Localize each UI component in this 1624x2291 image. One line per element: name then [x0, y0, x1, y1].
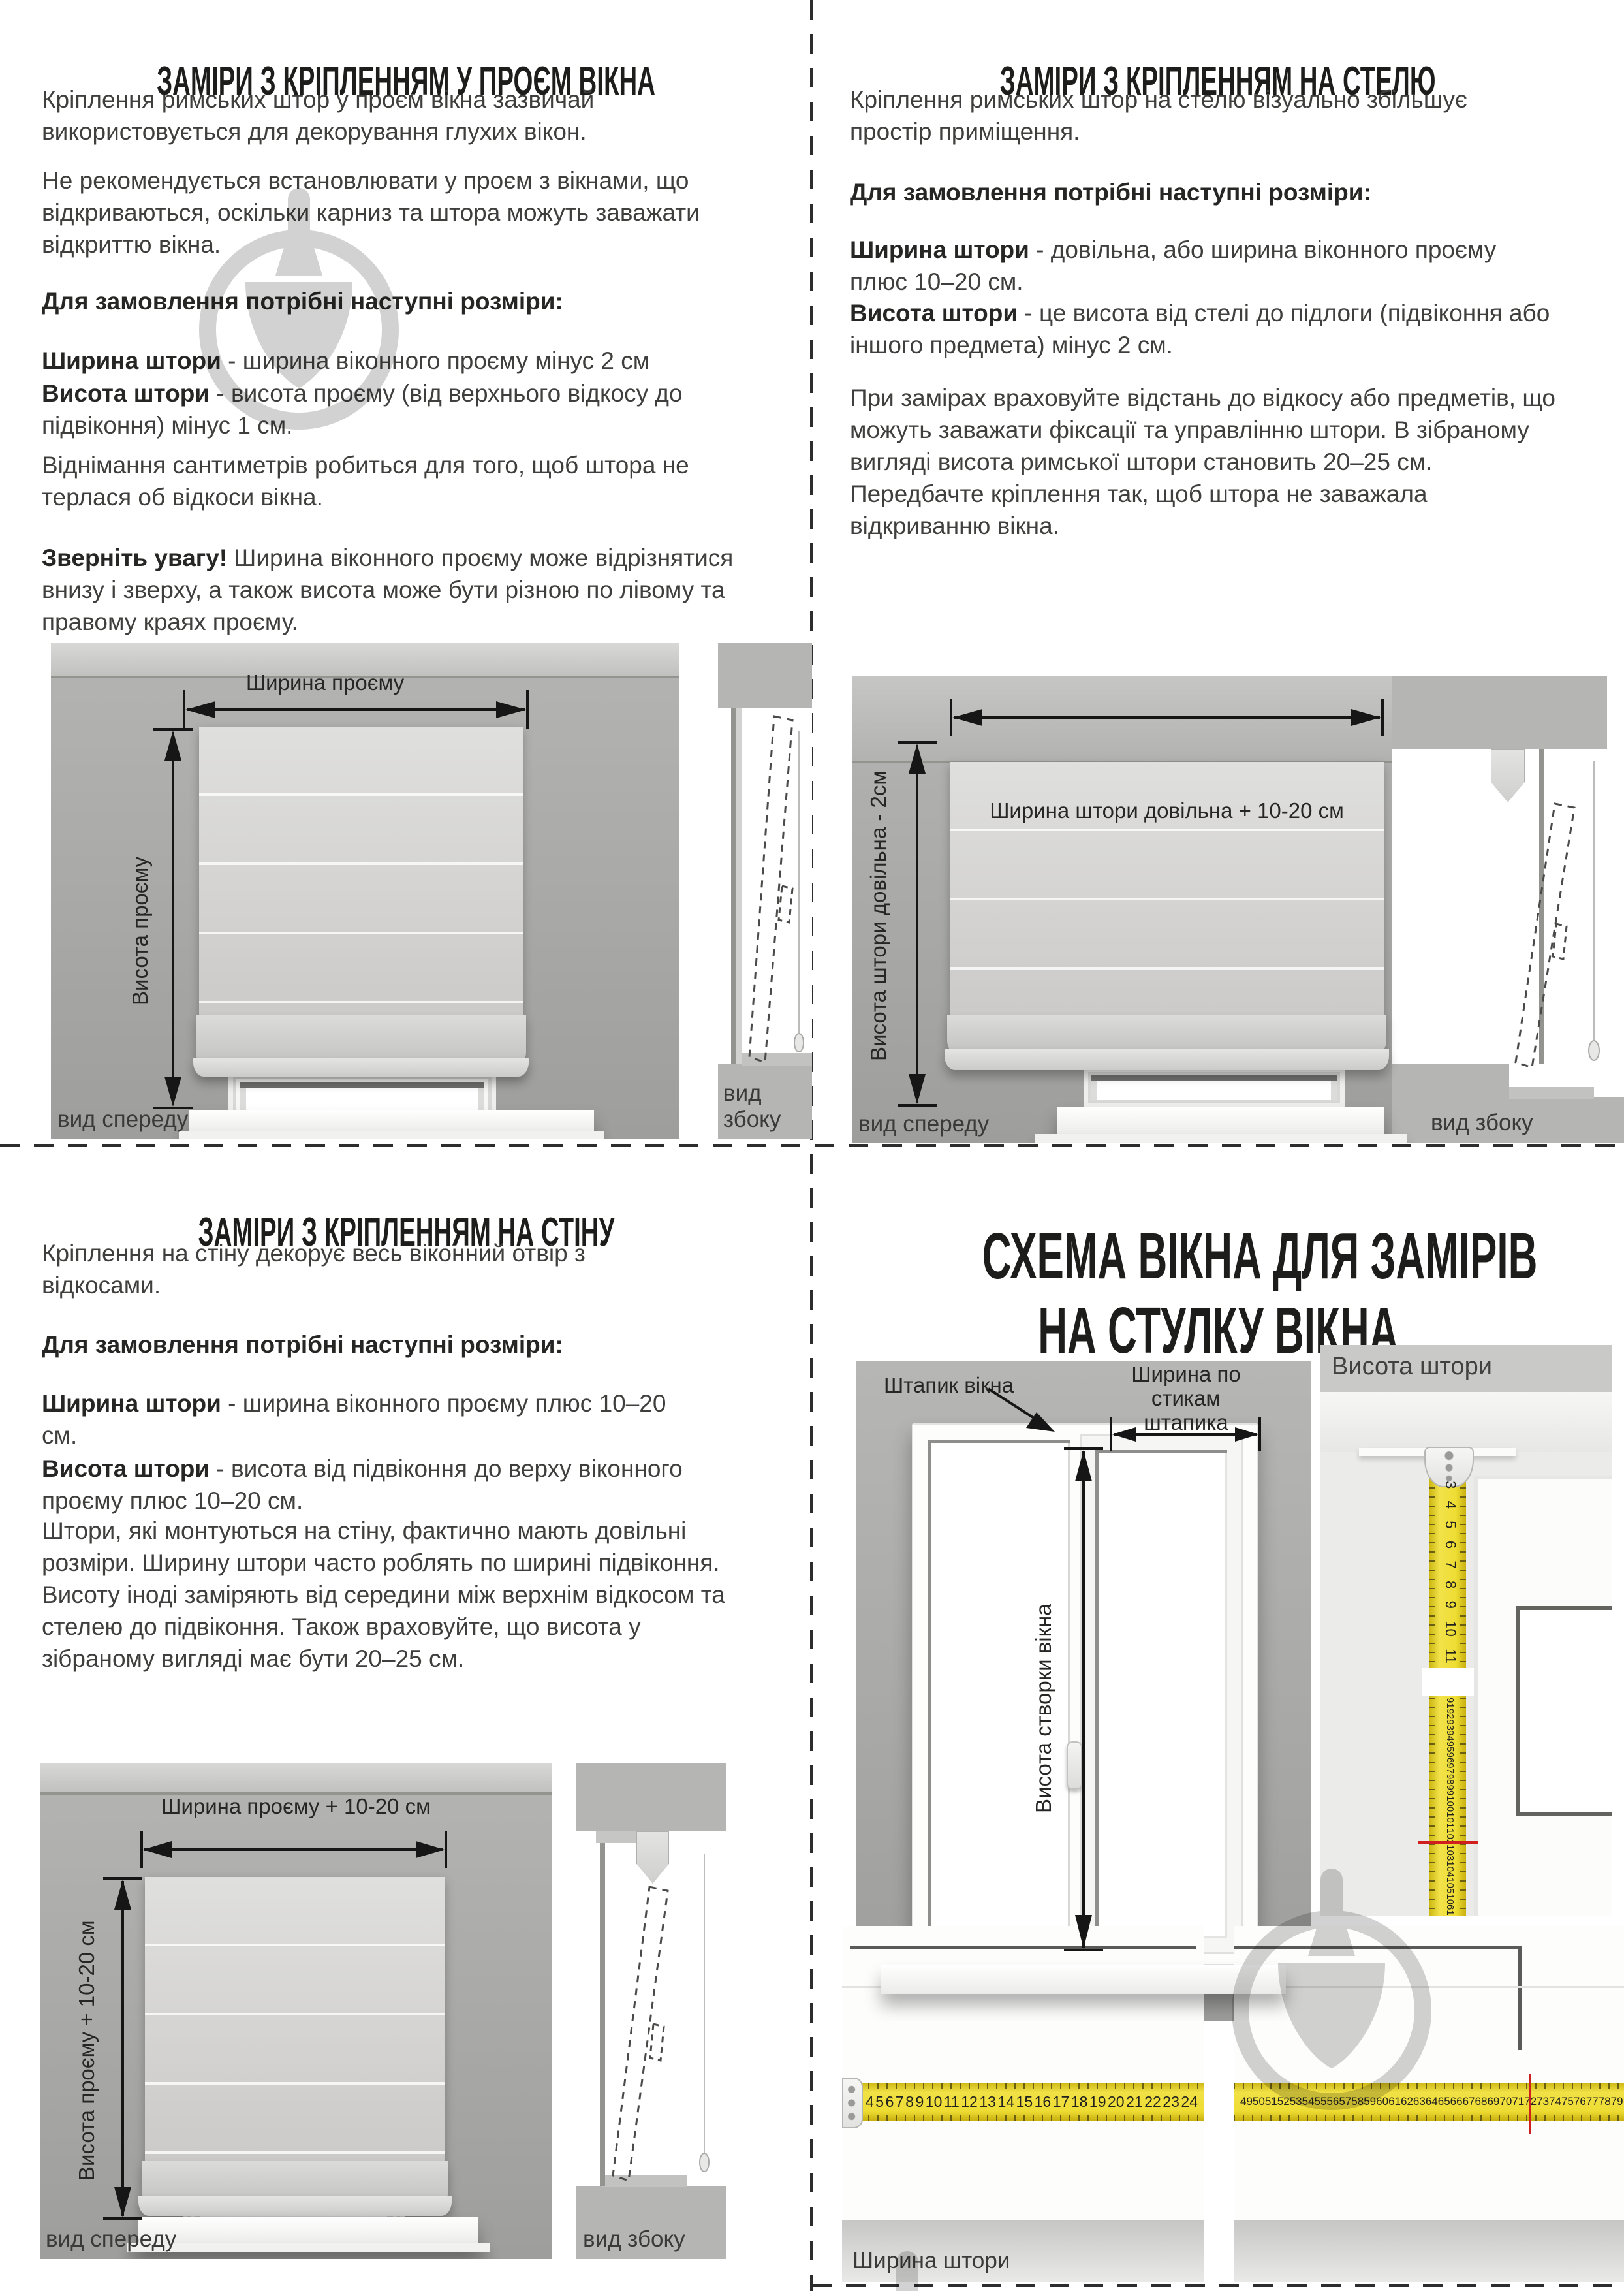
- term-name: Висота штори: [850, 300, 1018, 326]
- section-sash-scheme: СХЕМА ВІКНА ДЛЯ ЗАМІРІВ НА СТУЛКУ ВІКНА …: [812, 1146, 1624, 2291]
- front-view-caption: вид спереду: [858, 1111, 989, 1137]
- paragraph: Кріплення римських штор у проєм вікна за…: [42, 84, 734, 148]
- roman-blind-measuring-guide: ЗАМІРИ З КРІПЛЕННЯМ У ПРОЄМ ВІКНА Кріпле…: [0, 0, 1624, 2291]
- term-definition: - ширина віконного проєму мінус 2 см: [221, 347, 649, 374]
- blind-fold: [947, 1015, 1386, 1054]
- figure-front-view: Ширина проєму Висота проєму вид спереду: [51, 643, 679, 1139]
- term-width: Ширина штори - довільна, або ширина віко…: [850, 234, 1529, 298]
- windowsill-base: [127, 2243, 490, 2252]
- glass-edge-line: [850, 1946, 1196, 1949]
- bead-pointer-arrow: [987, 1387, 1059, 1438]
- paragraph: Кріплення на стіну декорує весь віконний…: [42, 1237, 662, 1301]
- width-dimension-arrow: [950, 699, 1384, 736]
- side-view-caption: вид збоку: [723, 1081, 812, 1133]
- figure-front-view: Ширина проєму + 10-20 см Висота проєму +…: [40, 1763, 552, 2259]
- term-name: Висота штори: [42, 380, 210, 407]
- ceiling-area: [1320, 1392, 1612, 1452]
- order-requirements-heading: Для замовлення потрібні наступні розміри…: [42, 1329, 760, 1361]
- right-sash-glass: [1095, 1450, 1227, 1938]
- right-sash: [1080, 1434, 1243, 1954]
- curtain-width-label: Ширина штори довільна + 10-20 см: [950, 798, 1384, 823]
- joint-width-line1: Ширина по стикам: [1131, 1362, 1240, 1410]
- window-glass: [1091, 1075, 1337, 1100]
- tape-hook: [842, 2078, 863, 2128]
- paragraph: Віднімання сантиметрів робиться для того…: [42, 449, 734, 513]
- frame-step-line: [1234, 1986, 1624, 1988]
- glass-corner-outline: [1516, 1606, 1612, 1816]
- roman-blind: [145, 1877, 445, 2164]
- paragraph: Не рекомендується встановлювати у проєм …: [42, 165, 734, 261]
- sash-height-label: Висота створки вікна: [1031, 1604, 1056, 1813]
- sill-front-band: [1234, 2220, 1624, 2282]
- section-wall-mount: ЗАМІРИ З КРІПЛЕННЯМ НА СТІНУ Кріплення н…: [0, 1146, 812, 2291]
- red-measure-mark: [1529, 2074, 1531, 2134]
- tilted-sash-outline: [576, 1763, 726, 2259]
- term-width: Ширина штори - ширина віконного проєму п…: [42, 1387, 695, 1451]
- opening-height-label: Висота проєму: [128, 857, 153, 1005]
- term-height: Висота штори - висота проєму (від верхнь…: [42, 377, 734, 441]
- term-width: Ширина штори - ширина віконного проєму м…: [42, 345, 734, 377]
- figure-sash-window: Штапик вікна Ширина по стикамштапика: [856, 1361, 1311, 2021]
- tape-cut-gap: [1422, 1668, 1474, 1696]
- side-view-caption: вид збоку: [1431, 1110, 1533, 1136]
- opening-height-label: Висота проєму + 10-20 см: [74, 1920, 99, 2181]
- notice-lead: Зверніть увагу!: [42, 545, 227, 571]
- glass-edge-line: [1234, 1946, 1521, 1949]
- windowsill: [1057, 1107, 1384, 1137]
- section-title-line1: СХЕМА ВІКНА ДЛЯ ЗАМІРІВ: [812, 1219, 1624, 1293]
- glass-corner-line: [1518, 1946, 1522, 2050]
- section-ceiling-mount: ЗАМІРИ З КРІПЛЕННЯМ НА СТЕЛЮ Кріплення р…: [812, 0, 1624, 1146]
- windowsill: [138, 2217, 478, 2246]
- blind-fold: [193, 1058, 529, 1077]
- joint-width-arrow: [1110, 1417, 1261, 1451]
- width-dimension-arrow: [183, 690, 529, 729]
- section-opening-mount: ЗАМІРИ З КРІПЛЕННЯМ У ПРОЄМ ВІКНА Кріпле…: [0, 0, 812, 1146]
- paragraph: При замірах враховуйте відстань до відко…: [850, 382, 1561, 542]
- red-measure-mark: [1418, 1841, 1478, 1844]
- paragraph: Кріплення римських штор на стелю візуаль…: [850, 84, 1542, 148]
- term-height: Висота штори - це висота від стелі до пі…: [850, 297, 1555, 361]
- curtain-width-caption: Ширина штори: [852, 2248, 1010, 2274]
- window-opening: [1084, 1067, 1345, 1108]
- ceiling-strip: [40, 1763, 552, 1795]
- tape-numbers-upper: 34567891011: [1436, 1481, 1465, 1664]
- measuring-tape-horizontal: 456789101112131415161718192021222324: [859, 2083, 1204, 2121]
- sash-height-arrow: [1064, 1447, 1103, 1951]
- width-dimension-arrow: [140, 1831, 447, 1868]
- order-requirements-heading: Для замовлення потрібні наступні розміри…: [42, 285, 760, 317]
- tape-numbers-lower: 9192939495969798991001011021031041051061…: [1436, 1698, 1465, 1910]
- term-name: Ширина штори: [42, 1390, 221, 1417]
- blind-fold: [945, 1049, 1389, 1070]
- figure-height-tape: Висота штори 34567891011 919293949596979…: [1320, 1345, 1612, 1916]
- figure-width-tape-right: 4950515253545556575859606162636465666768…: [1234, 1926, 1624, 2282]
- front-view-caption: вид спереду: [46, 2226, 176, 2252]
- figure-side-view: вид збоку: [1392, 676, 1624, 1143]
- term-name: Ширина штори: [850, 236, 1029, 263]
- tilted-sash-outline: [718, 643, 812, 1139]
- side-view-caption: вид збоку: [583, 2226, 685, 2252]
- windowsill: [881, 1965, 1286, 1994]
- height-caption-band: Висота штори: [1320, 1345, 1612, 1392]
- paragraph: Штори, які монтуються на стіну, фактично…: [42, 1515, 747, 1675]
- roman-blind: [199, 727, 523, 1022]
- notice: Зверніть увагу! Ширина віконного проєму …: [42, 542, 753, 638]
- windowsill-base: [1035, 1134, 1407, 1143]
- blind-fold: [138, 2196, 452, 2216]
- front-view-caption: вид спереду: [57, 1107, 188, 1133]
- windowsill: [189, 1110, 594, 1134]
- height-dimension-arrow: [898, 741, 937, 1107]
- term-name: Висота штори: [42, 1455, 210, 1482]
- figure-side-view: вид збоку: [576, 1763, 726, 2259]
- curtain-height-label: Висота штори довільна - 2см: [866, 770, 891, 1061]
- opening-width-label: Ширина проєму + 10-20 см: [40, 1794, 552, 1819]
- order-requirements-heading: Для замовлення потрібні наступні розміри…: [850, 176, 1568, 208]
- tilted-sash-outline: [1392, 676, 1624, 1143]
- height-dimension-arrow: [153, 728, 193, 1109]
- windowsill-base: [179, 1131, 604, 1139]
- curtain-height-caption: Висота штори: [1332, 1353, 1492, 1381]
- term-height: Висота штори - висота від підвіконня до …: [42, 1453, 747, 1517]
- figure-side-view: вид збоку: [718, 643, 812, 1139]
- measuring-tape-horizontal: 4950515253545556575859606162636465666768…: [1234, 2083, 1624, 2121]
- wall-area: 34567891011 9192939495969798991001011021…: [1320, 1392, 1612, 1916]
- term-name: Ширина штори: [42, 347, 221, 374]
- height-dimension-arrow: [103, 1877, 142, 2220]
